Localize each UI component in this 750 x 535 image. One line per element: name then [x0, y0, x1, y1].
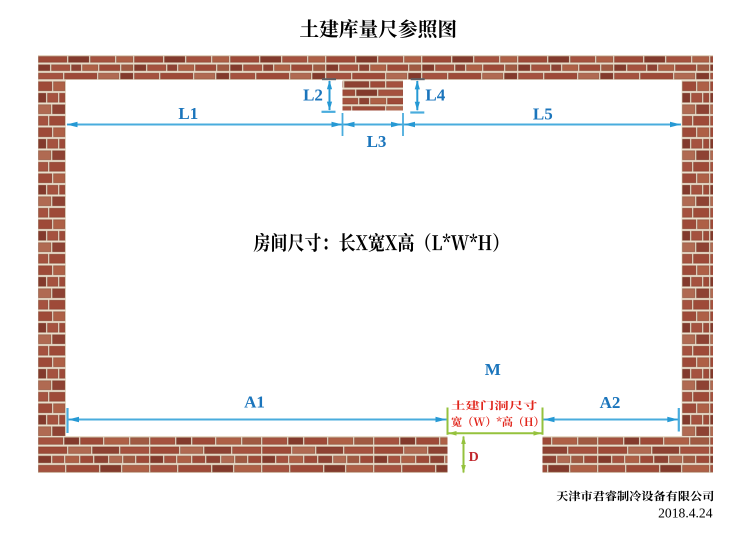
svg-text:L1: L1	[178, 104, 198, 123]
svg-text:L5: L5	[533, 105, 553, 124]
svg-text:M: M	[485, 360, 501, 379]
svg-text:D: D	[469, 450, 479, 465]
svg-text:2018.4.24: 2018.4.24	[658, 506, 713, 521]
svg-text:L2: L2	[303, 85, 323, 104]
svg-text:L4: L4	[425, 86, 445, 105]
svg-text:L3: L3	[367, 132, 387, 151]
svg-text:A2: A2	[600, 393, 621, 412]
svg-text:A1: A1	[244, 393, 265, 412]
